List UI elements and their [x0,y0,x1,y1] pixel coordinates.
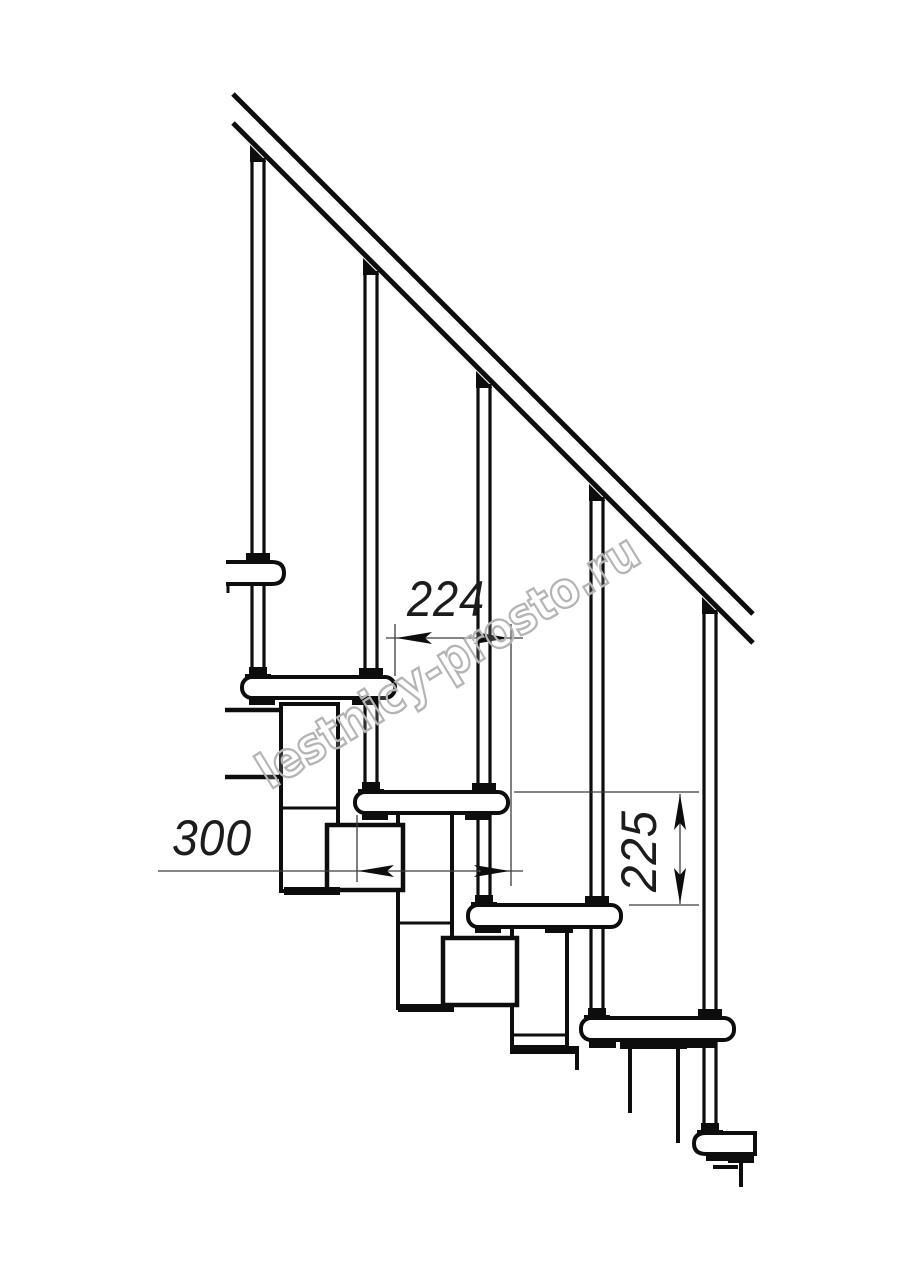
baluster-2-foot [358,782,384,793]
tread-3-tab-right [545,925,573,933]
staircase-technical-drawing: 224 300 225 lestnicy-prosto.ru [0,0,914,1280]
tread-5-cut [694,1133,755,1154]
tread-3-tab-left [475,925,501,933]
baluster-3-foot [471,895,497,906]
handrail-bottom-line [233,123,753,643]
tread5-hook-bar [728,1154,754,1163]
connector-box-2 [443,938,517,1005]
module-2-bottom-bar [398,1004,454,1012]
baluster-4-foot [584,1008,610,1019]
baluster-1-foot [245,667,271,678]
dim-tread-depth-label: 300 [172,810,252,866]
tread-4-tab-right [684,1040,715,1048]
tread-1-tab-left [249,697,275,705]
tread-3 [468,905,621,927]
tread-2-tab-right [465,812,491,820]
stringer-module-4-top-bar [620,1041,687,1049]
tread-2-tab-left [362,812,388,820]
tread-2 [355,792,508,813]
tread-4 [581,1018,734,1040]
module-1-bottom-bar [284,887,340,895]
tread-4-tab-left [589,1040,616,1048]
handrail-top-line [233,94,753,614]
rail-end-cap [226,562,284,584]
connector-box-1 [327,825,403,890]
stringer-module-3 [512,927,567,1052]
drawing-canvas: 224 300 225 lestnicy-prosto.ru [0,0,914,1280]
watermark-text: lestnicy-prosto.ru [246,523,649,800]
dim-rise-label: 225 [611,810,667,893]
tread-5-tab [706,1152,731,1161]
baluster-5-foot [697,1123,723,1134]
